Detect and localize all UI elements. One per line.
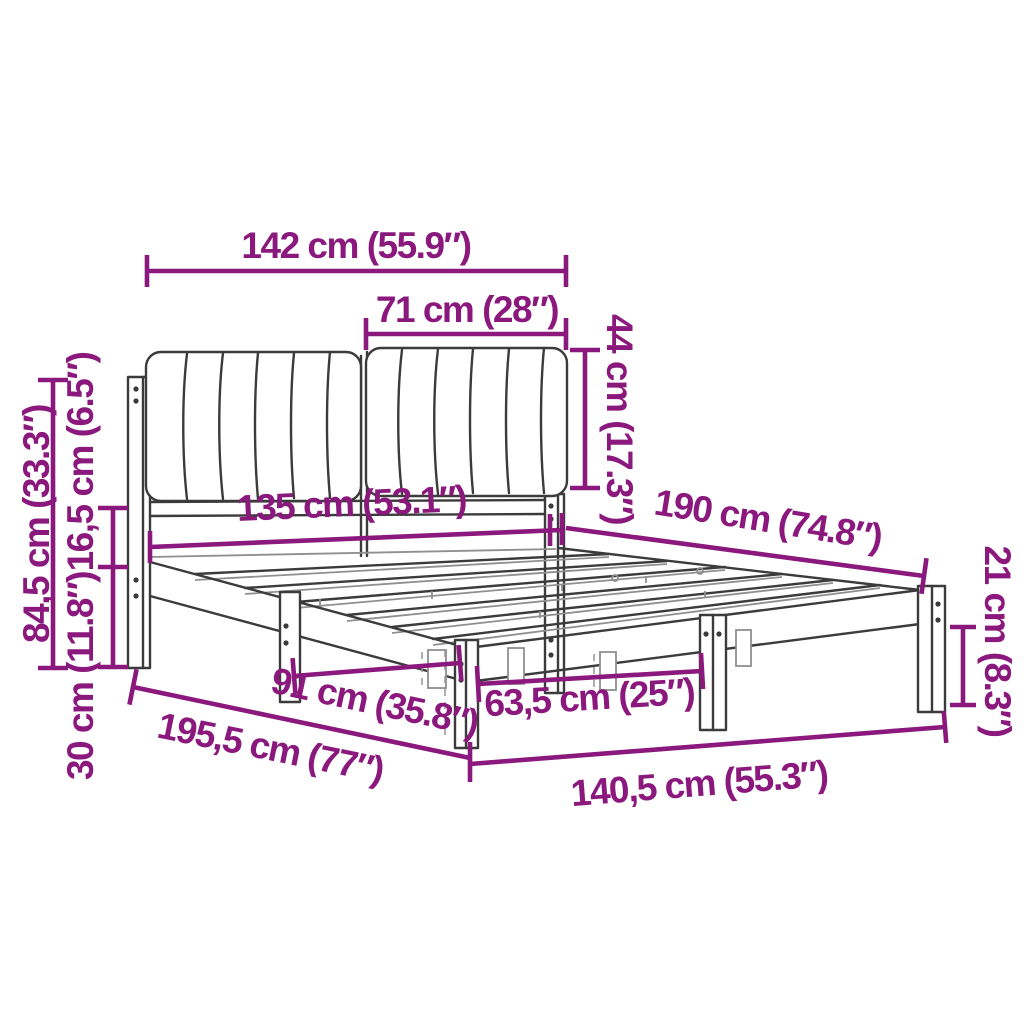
dim-headboard-width-label: 142 cm (55.9″) <box>241 225 470 266</box>
dim-cushion-width-label: 71 cm (28″) <box>376 289 558 330</box>
headboard-cushion-right <box>366 348 567 496</box>
dim-cushion-height-label: 44 cm (17.3″) <box>599 314 640 524</box>
dim-leg-height: 21 cm (8.3″) <box>950 546 1018 737</box>
bed-dimension-diagram: 142 cm (55.9″) 71 cm (28″) 44 cm (17.3″)… <box>0 0 1024 1024</box>
dim-cushion-width: 71 cm (28″) <box>366 289 566 350</box>
dim-total-width-label: 140,5 cm (55.3″) <box>569 753 829 814</box>
dim-leg-height-label: 21 cm (8.3″) <box>977 546 1018 737</box>
dim-inner-width-label: 135 cm (53.1″) <box>236 478 467 529</box>
dim-under-bed-clearance: 30 cm (11.8″) <box>60 567 128 780</box>
dim-leg-spacing-side-label: 91 cm (35.8″) <box>268 660 482 744</box>
foot-rear-leg <box>918 586 945 712</box>
dim-cushion-height: 44 cm (17.3″) <box>570 314 640 524</box>
slatted-bed-base <box>150 548 920 682</box>
dimension-annotations: 142 cm (55.9″) 71 cm (28″) 44 cm (17.3″)… <box>16 225 1018 814</box>
dim-rail-height-label: 16,5 cm (6.5″) <box>60 352 101 571</box>
dim-under-bed-clearance-label: 30 cm (11.8″) <box>60 572 101 780</box>
diagram-canvas: 142 cm (55.9″) 71 cm (28″) 44 cm (17.3″)… <box>0 0 1024 1024</box>
dim-headboard-width: 142 cm (55.9″) <box>147 225 566 287</box>
dim-headboard-height-label: 84,5 cm (33.3″) <box>16 405 57 643</box>
headboard-cushion-left <box>146 352 361 501</box>
dim-rail-height: 16,5 cm (6.5″) <box>60 352 128 571</box>
